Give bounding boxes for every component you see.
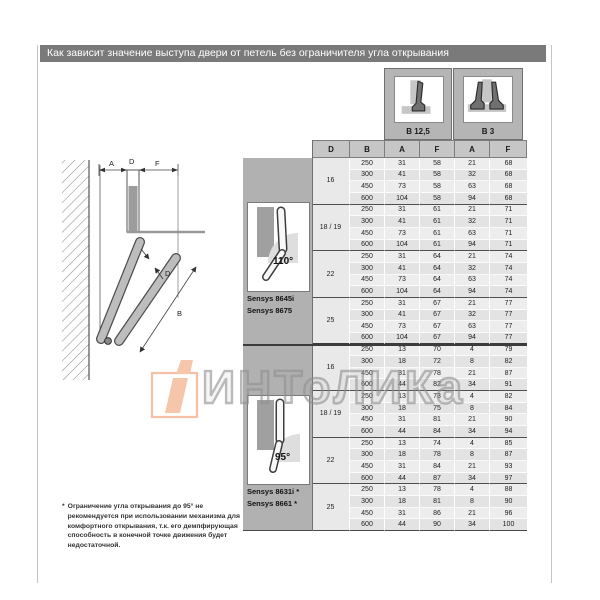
- d-value-cell: 22: [312, 438, 350, 485]
- table-cell: 81: [420, 496, 455, 508]
- table-cell: 31: [385, 508, 420, 520]
- table-cell: 18: [385, 449, 420, 461]
- table-cell: 71: [490, 216, 527, 228]
- col-header-d: D: [312, 140, 350, 158]
- table-cell: 64: [420, 275, 455, 287]
- table-cell: 600: [350, 519, 385, 531]
- table-cell: 8: [455, 449, 490, 461]
- table-cell: 300: [350, 403, 385, 415]
- hinge-pivot-point: [105, 338, 112, 345]
- table-cell: 600: [350, 240, 385, 252]
- table-cell: 77: [490, 321, 527, 333]
- table-cell: 41: [385, 310, 420, 322]
- table-cell: 300: [350, 310, 385, 322]
- table-cell: 75: [420, 403, 455, 415]
- page-title: Как зависит значение выступа двери от пе…: [40, 45, 546, 62]
- table-cell: 68: [490, 193, 527, 205]
- table-cell: 32: [455, 310, 490, 322]
- table-cell: 91: [490, 379, 527, 391]
- table-cell: 88: [490, 484, 527, 496]
- opening-angle-110-label: 110°: [273, 256, 293, 267]
- table-cell: 78: [420, 368, 455, 380]
- table-cell: 94: [455, 193, 490, 205]
- table-cell: 41: [385, 263, 420, 275]
- table-cell: 44: [385, 379, 420, 391]
- d-value-cell: 18 / 19: [312, 205, 350, 252]
- table-cell: 250: [350, 484, 385, 496]
- table-cell: 94: [455, 240, 490, 252]
- table-cell: 21: [455, 205, 490, 217]
- table-cell: 4: [455, 484, 490, 496]
- table-cell: 72: [420, 356, 455, 368]
- hinge-illustration-95: 95°: [247, 395, 310, 485]
- col-header-a1: A: [384, 140, 420, 158]
- footnote: * Ограничение угла открывания до 95° не …: [62, 502, 244, 551]
- table-cell: 21: [455, 158, 490, 170]
- footnote-marker: *: [62, 502, 65, 551]
- legend-icon-frame: [463, 76, 513, 123]
- table-cell: 67: [420, 333, 455, 345]
- table-cell: 94: [455, 286, 490, 298]
- legend-box-b125: B 12,5: [384, 68, 452, 140]
- model-labels-110: Sensys 8645i Sensys 8675: [247, 293, 294, 317]
- dim-label-d: D: [129, 157, 135, 166]
- table-cell: 18: [385, 403, 420, 415]
- hinge-95-icon: 95°: [248, 396, 309, 484]
- table-cell: 13: [385, 438, 420, 450]
- page-edge-right: [551, 45, 552, 583]
- table-cell: 87: [490, 368, 527, 380]
- table-cell: 300: [350, 449, 385, 461]
- table-cell: 31: [385, 158, 420, 170]
- model-labels-95: Sensys 8631i * Sensys 8661 *: [247, 486, 299, 510]
- table-cell: 73: [385, 228, 420, 240]
- table-cell: 73: [385, 275, 420, 287]
- table-cell: 31: [385, 205, 420, 217]
- d-value-cell: 18 / 19: [312, 391, 350, 438]
- table-cell: 34: [455, 426, 490, 438]
- d-value-cell: 16: [312, 158, 350, 205]
- door-projection-diagram: A D F D B: [55, 150, 235, 385]
- table-cell: 61: [420, 228, 455, 240]
- col-header-f2: F: [489, 140, 527, 158]
- table-cell: 63: [455, 181, 490, 193]
- table-cell: 100: [490, 519, 527, 531]
- table-cell: 13: [385, 345, 420, 357]
- table-cell: 68: [490, 158, 527, 170]
- table-cell: 104: [385, 333, 420, 345]
- table-cell: 250: [350, 205, 385, 217]
- legend-label-b3: B 3: [454, 127, 522, 136]
- table-cell: 250: [350, 391, 385, 403]
- table-cell: 4: [455, 345, 490, 357]
- table-cell: 44: [385, 426, 420, 438]
- table-cell: 71: [490, 240, 527, 252]
- dim-label-b: B: [177, 309, 182, 318]
- wall-hatch: [62, 160, 89, 380]
- table-cell: 21: [455, 368, 490, 380]
- table-cell: 68: [490, 181, 527, 193]
- table-cell: 250: [350, 298, 385, 310]
- col-header-b: B: [349, 140, 385, 158]
- table-cell: 41: [385, 216, 420, 228]
- table-cell: 86: [420, 508, 455, 520]
- legend-icon-frame: [394, 76, 444, 123]
- dim-line-b: [140, 267, 196, 352]
- table-cell: 18: [385, 356, 420, 368]
- table-cell: 58: [420, 158, 455, 170]
- table-cell: 64: [420, 286, 455, 298]
- table-cell: 67: [420, 321, 455, 333]
- dim-label-f: F: [155, 159, 160, 168]
- table-cell: 600: [350, 286, 385, 298]
- table-cell: 32: [455, 216, 490, 228]
- table-cell: 87: [490, 449, 527, 461]
- table-cell: 63: [455, 228, 490, 240]
- table-cell: 94: [455, 333, 490, 345]
- table-cell: 4: [455, 438, 490, 450]
- table-cell: 34: [455, 379, 490, 391]
- table-cell: 250: [350, 438, 385, 450]
- table-cell: 250: [350, 251, 385, 263]
- table-cell: 82: [490, 391, 527, 403]
- table-cell: 77: [490, 298, 527, 310]
- legend-box-b3: B 3: [453, 68, 523, 140]
- footnote-text: Ограничение угла открывания до 95° не ре…: [68, 502, 244, 551]
- table-cell: 450: [350, 508, 385, 520]
- table-header: D B A F A F: [312, 140, 527, 158]
- table-cell: 31: [385, 461, 420, 473]
- table-cell: 450: [350, 275, 385, 287]
- table-cell: 300: [350, 356, 385, 368]
- table-cell: 450: [350, 228, 385, 240]
- table-cell: 84: [420, 461, 455, 473]
- table-cell: 250: [350, 345, 385, 357]
- table-cell: 78: [420, 484, 455, 496]
- table-cell: 58: [420, 193, 455, 205]
- table-cell: 31: [385, 298, 420, 310]
- table-cell: 71: [490, 205, 527, 217]
- col-header-f1: F: [419, 140, 455, 158]
- table-cell: 44: [385, 473, 420, 485]
- table-cell: 77: [490, 310, 527, 322]
- table-cell: 81: [420, 414, 455, 426]
- table-cell: 300: [350, 263, 385, 275]
- table-cell: 84: [420, 426, 455, 438]
- table-cell: 450: [350, 321, 385, 333]
- model-label: Sensys 8675: [247, 305, 294, 317]
- table-cell: 82: [420, 379, 455, 391]
- table-cell: 600: [350, 473, 385, 485]
- d-value-cell: 22: [312, 251, 350, 298]
- table-cell: 90: [420, 519, 455, 531]
- table-cell: 21: [455, 298, 490, 310]
- table-cell: 31: [385, 251, 420, 263]
- model-label: Sensys 8631i *: [247, 486, 299, 498]
- table-cell: 77: [490, 333, 527, 345]
- table-cell: 96: [490, 508, 527, 520]
- table-cell: 104: [385, 286, 420, 298]
- table-cell: 67: [420, 298, 455, 310]
- page-edge-left: [37, 45, 38, 583]
- hinge-illustration-110: 110°: [247, 202, 310, 292]
- table-cell: 13: [385, 391, 420, 403]
- table-cell: 250: [350, 158, 385, 170]
- section-divider: [243, 344, 527, 346]
- table-cell: 104: [385, 240, 420, 252]
- table-cell: 18: [385, 496, 420, 508]
- table-cell: 84: [490, 403, 527, 415]
- table-cell: 73: [385, 181, 420, 193]
- table-cell: 13: [385, 484, 420, 496]
- table-cell: 79: [490, 345, 527, 357]
- table-cell: 600: [350, 379, 385, 391]
- table-cell: 63: [455, 275, 490, 287]
- d-value-cell: 25: [312, 298, 350, 345]
- table-cell: 58: [420, 170, 455, 182]
- dim-label-a: A: [109, 159, 114, 168]
- table-cell: 600: [350, 333, 385, 345]
- table-cell: 32: [455, 263, 490, 275]
- hinge-mounting-plate-double-icon: [464, 77, 510, 120]
- table-cell: 74: [420, 438, 455, 450]
- table-cell: 64: [420, 251, 455, 263]
- table-cell: 41: [385, 170, 420, 182]
- table-cell: 300: [350, 170, 385, 182]
- table-cell: 34: [455, 519, 490, 531]
- table-cell: 31: [385, 368, 420, 380]
- table-cell: 104: [385, 193, 420, 205]
- table-cell: 94: [490, 426, 527, 438]
- table-cell: 73: [385, 321, 420, 333]
- table-cell: 450: [350, 368, 385, 380]
- table-left-border: [312, 140, 313, 531]
- table-cell: 8: [455, 403, 490, 415]
- table-cell: 44: [385, 519, 420, 531]
- table-cell: 21: [455, 251, 490, 263]
- table-cell: 87: [420, 473, 455, 485]
- table-cell: 21: [455, 508, 490, 520]
- table-cell: 73: [420, 391, 455, 403]
- table-cell: 58: [420, 181, 455, 193]
- table-cell: 600: [350, 426, 385, 438]
- table-cell: 71: [490, 228, 527, 240]
- hinge-110-icon: 110°: [248, 203, 309, 291]
- table-cell: 70: [420, 345, 455, 357]
- table-cell: 63: [455, 321, 490, 333]
- table-cell: 4: [455, 391, 490, 403]
- table-cell: 34: [455, 473, 490, 485]
- table-cell: 74: [490, 286, 527, 298]
- table-cell: 450: [350, 414, 385, 426]
- table-cell: 300: [350, 496, 385, 508]
- table-cell: 21: [455, 461, 490, 473]
- hinge-mounting-plate-single-icon: [395, 77, 441, 120]
- table-cell: 32: [455, 170, 490, 182]
- opening-angle-95-label: 95°: [275, 452, 290, 463]
- dim-label-door-thickness: D: [165, 269, 171, 278]
- table-cell: 78: [420, 449, 455, 461]
- table-cell: 68: [490, 170, 527, 182]
- catalog-page: Как зависит значение выступа двери от пе…: [0, 0, 600, 600]
- table-cell: 93: [490, 461, 527, 473]
- table-cell: 8: [455, 356, 490, 368]
- table-cell: 74: [490, 251, 527, 263]
- table-cell: 64: [420, 263, 455, 275]
- table-cell: 21: [455, 414, 490, 426]
- table-cell: 90: [490, 414, 527, 426]
- col-header-a2: A: [454, 140, 490, 158]
- model-label: Sensys 8661 *: [247, 498, 299, 510]
- table-cell: 450: [350, 461, 385, 473]
- table-cell: 61: [420, 240, 455, 252]
- table-cell: 600: [350, 193, 385, 205]
- cabinet-side-panel-fill: [129, 186, 138, 231]
- table-cell: 31: [385, 414, 420, 426]
- table-cell: 67: [420, 310, 455, 322]
- table-cell: 61: [420, 205, 455, 217]
- table-cell: 61: [420, 216, 455, 228]
- legend-label-b125: B 12,5: [385, 127, 451, 136]
- table-cell: 97: [490, 473, 527, 485]
- table-cell: 74: [490, 263, 527, 275]
- table-cell: 74: [490, 275, 527, 287]
- table-cell: 450: [350, 181, 385, 193]
- d-value-cell: 16: [312, 345, 350, 392]
- table-cell: 90: [490, 496, 527, 508]
- table-cell: 300: [350, 216, 385, 228]
- d-value-cell: 25: [312, 484, 350, 531]
- model-label: Sensys 8645i: [247, 293, 294, 305]
- table-cell: 85: [490, 438, 527, 450]
- table-cell: 8: [455, 496, 490, 508]
- table-cell: 82: [490, 356, 527, 368]
